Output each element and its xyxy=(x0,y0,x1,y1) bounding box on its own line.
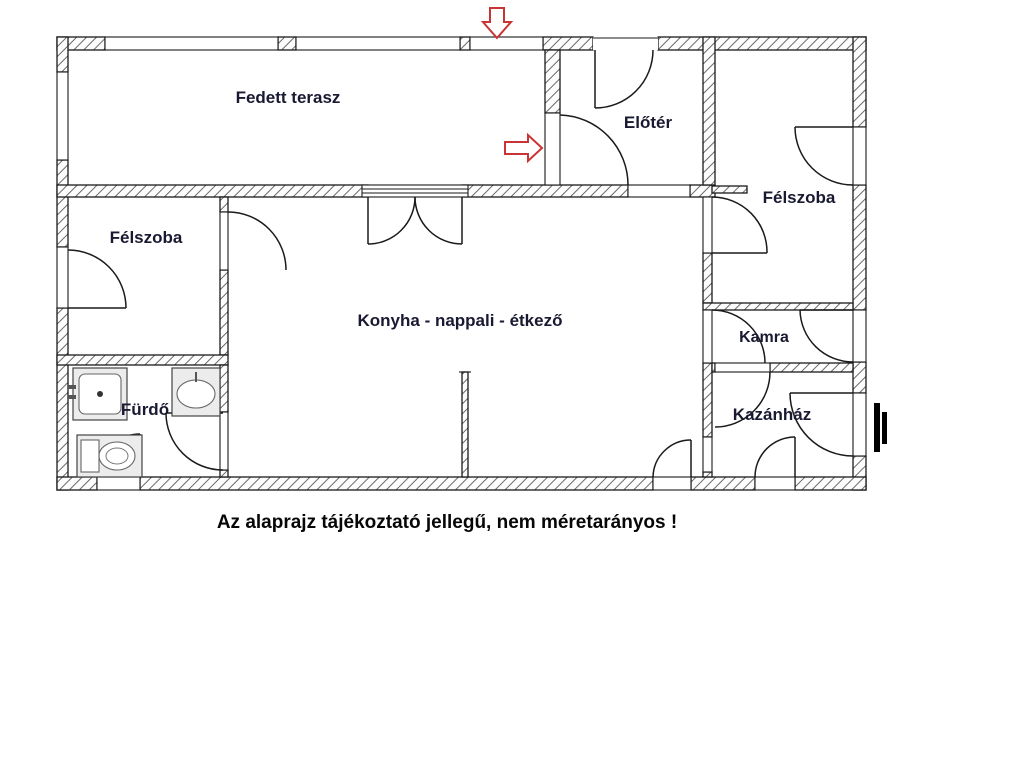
floor-plan-drawing xyxy=(0,0,1023,768)
black-bar-marker xyxy=(882,412,887,444)
washbasin-icon xyxy=(172,368,220,416)
shower-tray-icon xyxy=(68,368,127,420)
room-label-furdo: Fürdő xyxy=(121,400,169,420)
terrace-edge-opening xyxy=(470,37,543,50)
fixtures xyxy=(68,368,220,477)
window-opening xyxy=(853,393,866,456)
markers xyxy=(483,8,887,452)
room-label-kazanhaz: Kazánház xyxy=(733,405,811,425)
entrance-arrow-down-icon xyxy=(483,8,511,38)
room-label-eloter: Előtér xyxy=(624,113,672,133)
room-label-konyha: Konyha - nappali - étkező xyxy=(358,311,563,331)
floor-plan-page: Fedett terasz Előtér Félszoba Félszoba K… xyxy=(0,0,1023,768)
cased-opening xyxy=(628,185,690,197)
entrance-door xyxy=(545,113,560,185)
door-opening xyxy=(653,477,691,490)
room-label-felszoba-left: Félszoba xyxy=(110,228,183,248)
window-opening xyxy=(853,310,866,362)
entrance-arrow-right-icon xyxy=(505,135,542,161)
terrace-edge-opening xyxy=(57,72,68,160)
door-opening xyxy=(755,477,795,490)
door-opening xyxy=(703,437,712,472)
door-opening xyxy=(703,197,712,253)
black-bar-marker xyxy=(874,403,880,452)
door-opening xyxy=(703,310,712,363)
toilet-icon xyxy=(77,435,142,477)
room-label-felszoba-right: Félszoba xyxy=(763,188,836,208)
door-opening xyxy=(593,37,658,50)
window-opening xyxy=(57,247,68,308)
terrace-edge-opening xyxy=(105,37,278,50)
window-opening xyxy=(853,127,866,185)
door-opening xyxy=(220,212,228,270)
terrace-edge-opening xyxy=(296,37,460,50)
disclaimer-caption: Az alaprajz tájékoztató jellegű, nem mér… xyxy=(217,512,677,534)
double-door-threshold xyxy=(362,185,468,197)
room-label-kamra: Kamra xyxy=(739,329,789,347)
room-label-fedett-terasz: Fedett terasz xyxy=(236,88,341,108)
door-opening xyxy=(220,412,228,470)
door-opening xyxy=(97,477,140,490)
door-opening xyxy=(715,363,770,372)
